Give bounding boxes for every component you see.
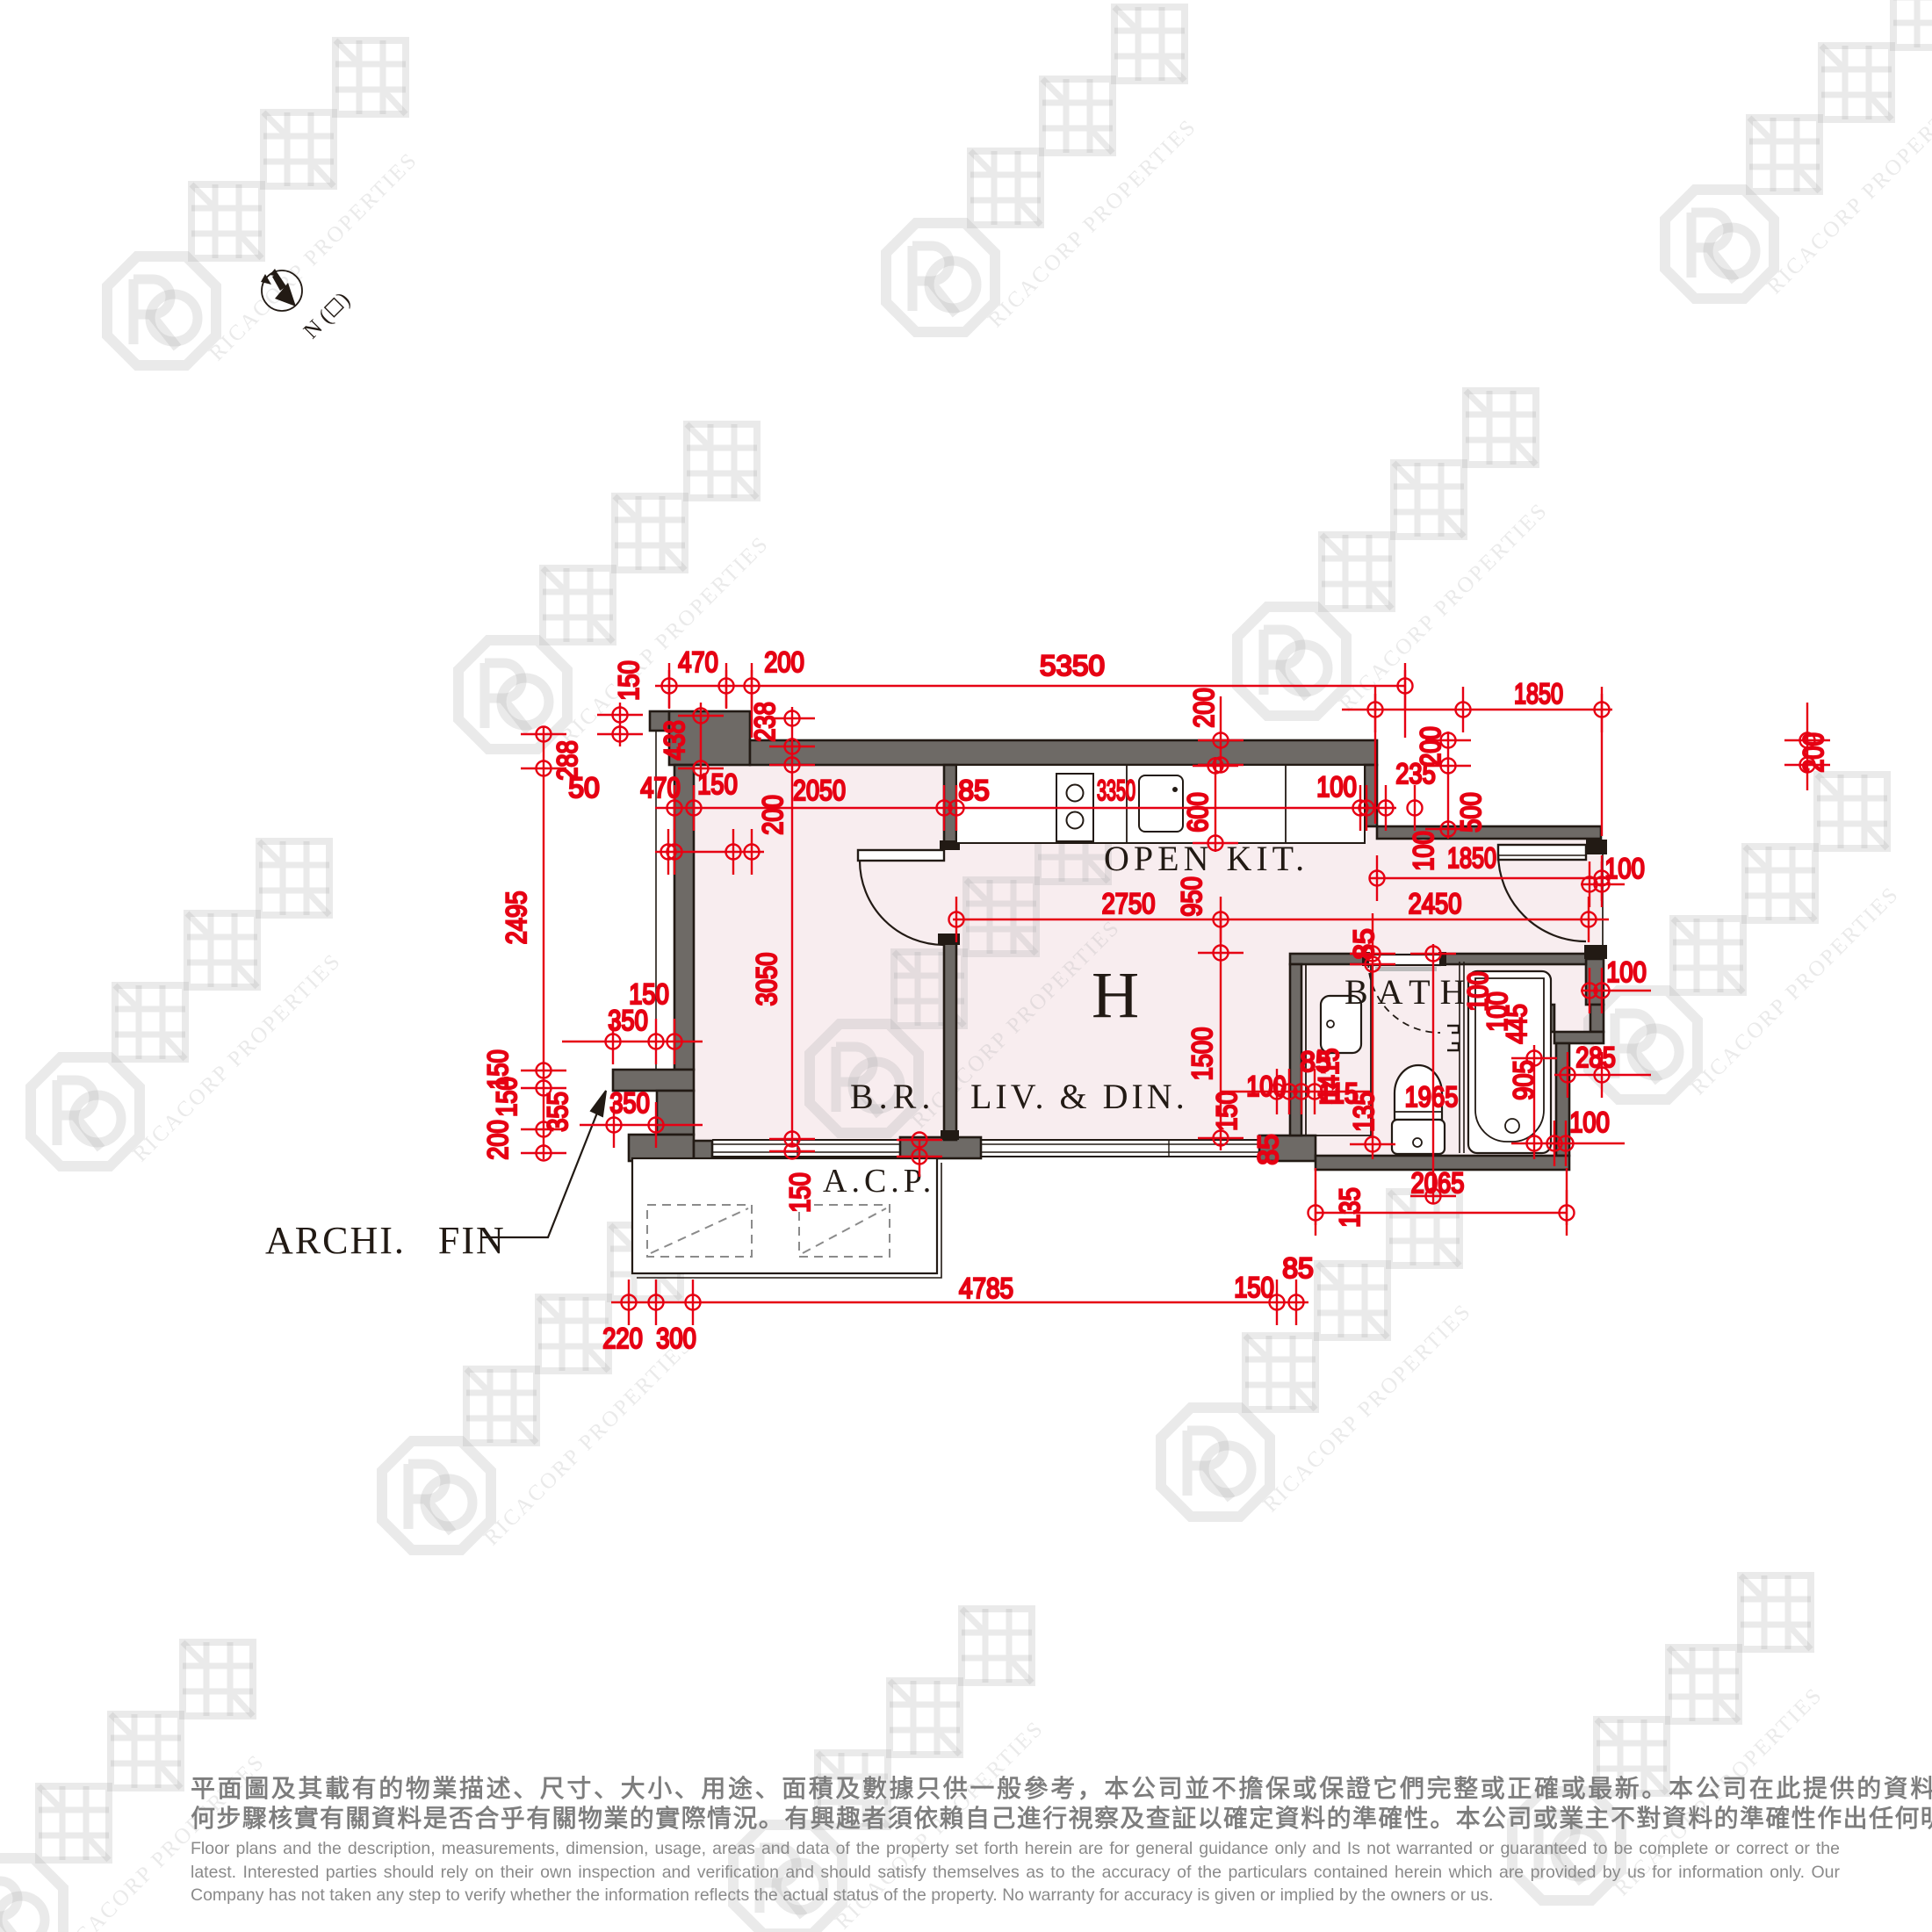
svg-text:85: 85 (1282, 1252, 1314, 1284)
svg-text:100: 100 (1408, 831, 1439, 871)
svg-text:85: 85 (958, 775, 990, 806)
svg-text:1965: 1965 (1405, 1081, 1459, 1113)
svg-text:85: 85 (1300, 1046, 1331, 1078)
svg-text:200: 200 (482, 1120, 514, 1160)
svg-text:238: 238 (749, 702, 781, 742)
svg-text:600: 600 (1182, 792, 1214, 833)
svg-text:150: 150 (784, 1172, 816, 1213)
svg-text:ARCHI. FIN: ARCHI. FIN (265, 1219, 506, 1262)
svg-text:200: 200 (1415, 726, 1446, 767)
svg-text:BATH: BATH (1344, 972, 1474, 1012)
svg-text:445: 445 (1501, 1004, 1532, 1044)
svg-text:1500: 1500 (1186, 1027, 1218, 1081)
svg-text:85: 85 (1348, 928, 1380, 960)
svg-text:100: 100 (1606, 956, 1647, 988)
svg-text:350: 350 (608, 1005, 648, 1036)
svg-text:3050: 3050 (751, 953, 782, 1006)
svg-text:285: 285 (1575, 1042, 1616, 1073)
svg-text:200: 200 (1798, 732, 1829, 773)
svg-text:100: 100 (1246, 1071, 1287, 1102)
svg-text:355: 355 (542, 1092, 573, 1132)
svg-text:150: 150 (491, 1077, 523, 1117)
svg-text:LIV. & DIN.: LIV. & DIN. (970, 1077, 1188, 1116)
svg-text:135: 135 (1334, 1187, 1366, 1228)
svg-text:905: 905 (1508, 1060, 1539, 1100)
svg-text:470: 470 (640, 772, 681, 804)
svg-text:3350: 3350 (1097, 775, 1135, 806)
svg-text:150: 150 (613, 660, 645, 701)
svg-text:100: 100 (1604, 853, 1645, 884)
svg-text:2065: 2065 (1411, 1167, 1465, 1199)
svg-text:150: 150 (1234, 1272, 1274, 1303)
svg-text:200: 200 (757, 795, 789, 835)
svg-text:470: 470 (678, 646, 718, 678)
svg-text:2450: 2450 (1409, 888, 1462, 919)
svg-text:N (: N ( (299, 306, 336, 343)
svg-text:150: 150 (697, 768, 738, 800)
svg-text:OPEN KIT.: OPEN KIT. (1104, 839, 1308, 878)
svg-text:2495: 2495 (501, 891, 532, 945)
svg-text:100: 100 (1569, 1107, 1610, 1138)
svg-text:85: 85 (1252, 1134, 1284, 1165)
svg-text:150: 150 (1211, 1091, 1243, 1131)
svg-text:288: 288 (551, 740, 583, 781)
svg-text:H: H (1092, 959, 1139, 1032)
svg-text:4785: 4785 (959, 1272, 1013, 1304)
svg-text:2050: 2050 (793, 775, 846, 806)
svg-text:1850: 1850 (1447, 842, 1496, 874)
svg-text:200: 200 (764, 646, 804, 678)
svg-text:500: 500 (1455, 792, 1487, 833)
svg-text:350: 350 (609, 1087, 650, 1119)
svg-text:100: 100 (1316, 771, 1357, 803)
svg-text:200: 200 (1188, 688, 1220, 728)
svg-text:): ) (333, 288, 355, 310)
svg-text:2750: 2750 (1102, 888, 1156, 919)
svg-text:300: 300 (656, 1323, 696, 1354)
svg-text:B.R.: B.R. (850, 1077, 935, 1116)
svg-text:438: 438 (659, 720, 690, 761)
svg-text:220: 220 (602, 1323, 643, 1354)
svg-text:950: 950 (1176, 876, 1207, 917)
svg-text:5350: 5350 (1040, 650, 1105, 681)
svg-text:1850: 1850 (1514, 678, 1563, 710)
svg-text:135: 135 (1348, 1092, 1380, 1132)
